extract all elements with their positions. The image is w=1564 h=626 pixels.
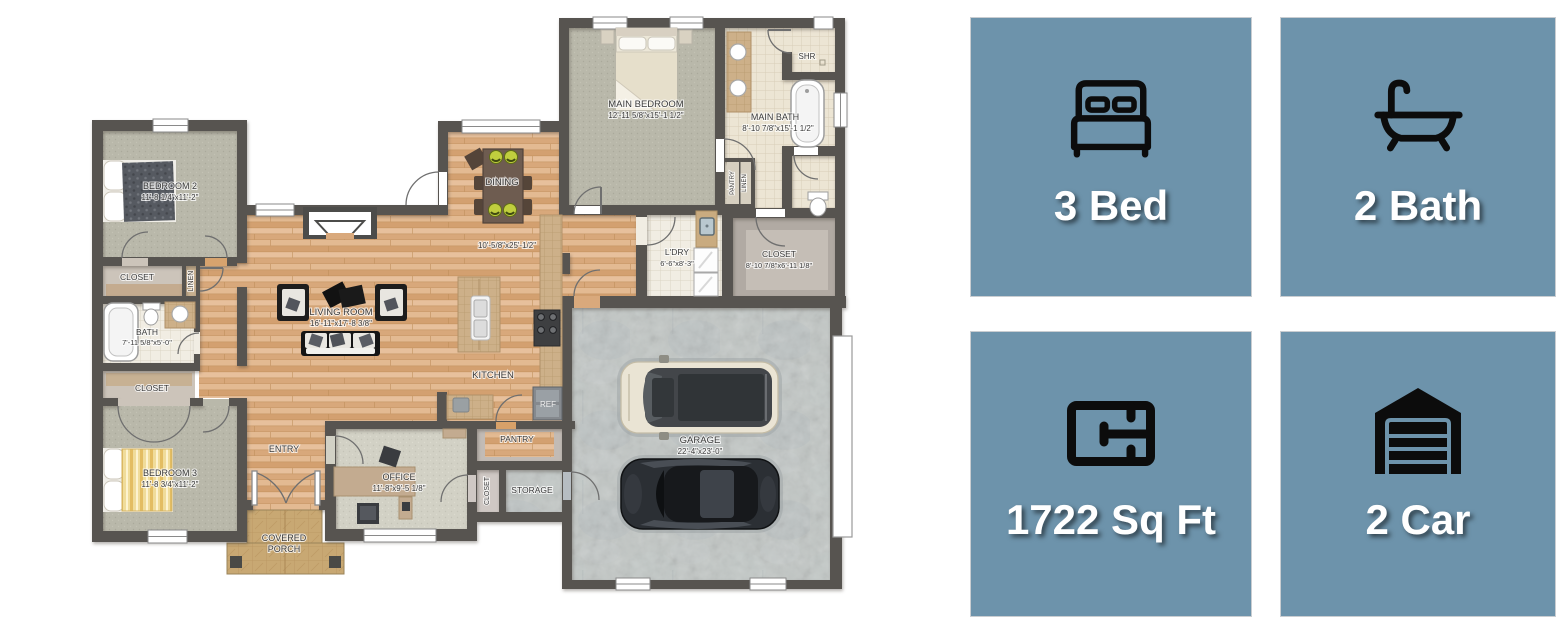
svg-text:SHR: SHR [799,52,816,61]
svg-text:PORCH: PORCH [268,544,301,554]
svg-text:DINING: DINING [485,177,518,188]
svg-text:BATH: BATH [136,327,158,337]
svg-text:8'-10 7/8"x6'-11 1/8": 8'-10 7/8"x6'-11 1/8" [746,261,813,270]
svg-text:CLOSET: CLOSET [484,476,491,505]
svg-text:BEDROOM 2: BEDROOM 2 [143,181,197,191]
svg-text:LIVING ROOM: LIVING ROOM [309,307,372,318]
svg-text:OFFICE: OFFICE [383,472,416,482]
svg-text:CLOSET: CLOSET [762,249,796,259]
svg-text:8'-10 7/8"x15'-1 1/2": 8'-10 7/8"x15'-1 1/2" [742,124,814,133]
svg-text:12'-11 5/8"x15'-1 1/2": 12'-11 5/8"x15'-1 1/2" [608,111,683,120]
svg-text:22'-4"x23'-0": 22'-4"x23'-0" [678,447,723,456]
svg-text:BEDROOM 3: BEDROOM 3 [143,468,197,478]
svg-text:LINEN: LINEN [742,174,748,192]
svg-text:L'DRY: L'DRY [665,247,689,257]
svg-text:GARAGE: GARAGE [680,435,721,446]
svg-text:COVERED: COVERED [262,533,307,543]
svg-text:MAIN BEDROOM: MAIN BEDROOM [608,99,684,110]
svg-text:10'-5/8"x25'-1/2": 10'-5/8"x25'-1/2" [478,241,536,250]
svg-text:16'-11"x17'-8 3/8": 16'-11"x17'-8 3/8" [310,319,372,328]
svg-text:PANTRY: PANTRY [500,434,534,444]
svg-text:6'-6"x8'-3": 6'-6"x8'-3" [660,259,694,268]
svg-text:REF: REF [540,400,556,409]
svg-text:PANTRY: PANTRY [730,171,736,195]
svg-text:ENTRY: ENTRY [269,444,299,454]
svg-text:STORAGE: STORAGE [511,485,553,495]
svg-text:7'-11 5/8"x5'-0": 7'-11 5/8"x5'-0" [122,338,172,347]
svg-text:11'-8"x9'-5 1/8": 11'-8"x9'-5 1/8" [372,484,425,493]
svg-text:CLOSET: CLOSET [120,272,154,282]
svg-text:11'-8 1/4"x11'-2": 11'-8 1/4"x11'-2" [142,193,199,202]
svg-text:CLOSET: CLOSET [135,383,169,393]
svg-text:MAIN BATH: MAIN BATH [751,112,799,122]
svg-text:11'-8 3/4"x11'-2": 11'-8 3/4"x11'-2" [142,480,199,489]
svg-text:LINEN: LINEN [188,271,195,292]
svg-text:KITCHEN: KITCHEN [472,370,514,381]
